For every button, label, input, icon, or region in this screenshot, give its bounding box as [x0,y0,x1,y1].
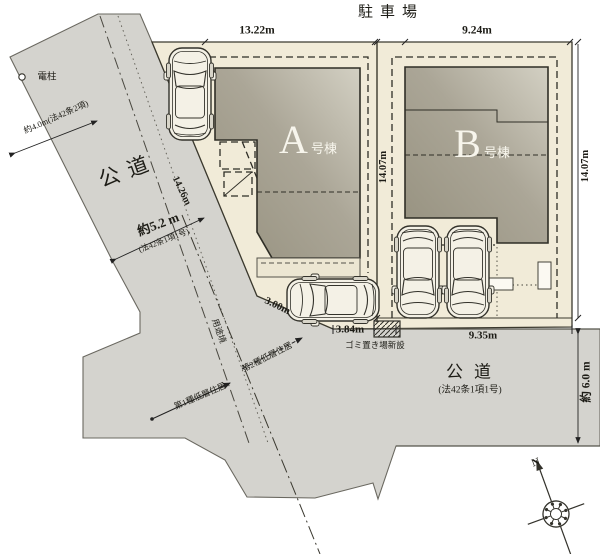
car-lot-a-top [164,48,216,140]
frontage-center-dim: 3.84m [336,325,364,336]
frontage-b-dim: 9.35m [469,331,497,342]
car-lot-b-right [442,226,494,318]
lot-a-side-dim: 14.07m [379,151,390,183]
building-a-letter: A [279,120,309,160]
car-lot-b-left [392,226,444,318]
lot-a-top-dim: 13.22m [239,25,274,37]
utility-pole-icon [19,74,25,80]
site-plan: 駐車場 13.22m 9.24m 14.07m 14.07m 14.26m 3.… [0,0,600,554]
building-b-letter: B [454,124,482,164]
plan-title: 駐車場 [358,6,424,21]
site-plan-drawing [0,0,600,554]
car-lot-a-front [287,274,379,326]
lot-b-side-dim: 14.07m [581,150,592,182]
building-a-label: A号棟 [279,120,337,160]
compass-icon [508,449,599,554]
utility-pole-label: 電柱 [37,73,56,83]
road-bottom-width: 約 6.0 m [581,361,593,402]
building-b-suffix: 号棟 [484,146,510,159]
building-a-suffix: 号棟 [311,142,337,155]
road-bottom-name: 公道 [446,364,502,381]
lot-b-top-dim: 9.24m [462,25,492,37]
garbage-label: ゴミ置き場新設 [345,341,405,350]
building-b-label: B号棟 [454,124,510,164]
road-bottom-law: (法42条1項1号) [438,386,501,396]
utility-slab-vertical [538,262,551,289]
